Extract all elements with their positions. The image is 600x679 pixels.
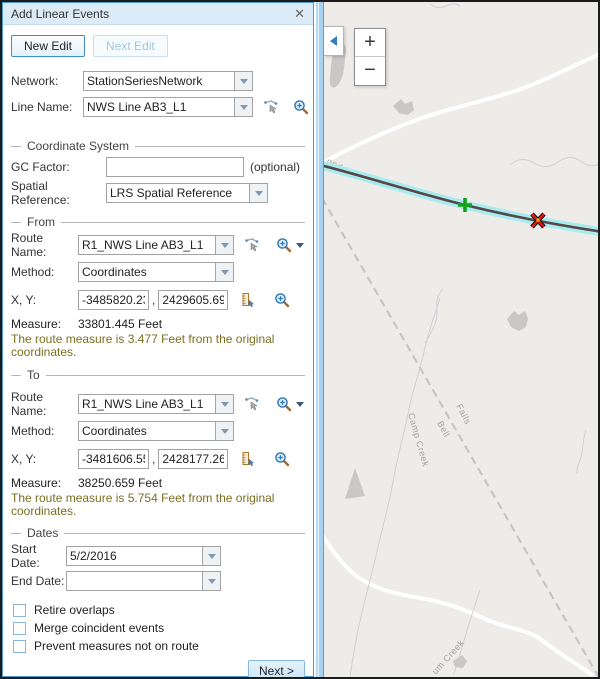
xy-separator: , <box>152 293 155 307</box>
retire-overlaps-option: Retire overlaps <box>11 601 305 619</box>
select-line-on-map-icon[interactable] <box>263 99 279 115</box>
optional-hint: (optional) <box>250 160 300 174</box>
pick-coordinates-icon[interactable] <box>240 451 256 467</box>
zoom-to-line-icon[interactable] <box>293 99 309 115</box>
from-route-name-select[interactable]: R1_NWS Line AB3_L1 <box>78 235 234 255</box>
dropdown-arrow-icon[interactable] <box>215 422 233 440</box>
network-value: StationSeriesNetwork <box>84 72 234 90</box>
checkbox-label: Merge coincident events <box>34 621 164 635</box>
prevent-measures-checkbox[interactable] <box>13 640 26 653</box>
to-measure-value: 38250.659 Feet <box>78 476 162 490</box>
chevron-left-icon <box>330 36 337 46</box>
start-date-value: 5/2/2016 <box>67 547 202 565</box>
dropdown-arrow-icon[interactable] <box>215 263 233 281</box>
map-canvas[interactable]: ond Cr Falls Bell Camp Creek um Creek + <box>323 2 598 677</box>
network-label: Network: <box>11 74 83 88</box>
zoom-out-button[interactable]: − <box>355 57 385 85</box>
from-method-select[interactable]: Coordinates <box>78 262 234 282</box>
to-measure-label: Measure: <box>11 476 78 490</box>
select-route-on-map-icon[interactable] <box>244 237 260 253</box>
from-method-label: Method: <box>11 265 78 279</box>
line-name-select[interactable]: NWS Line AB3_L1 <box>83 97 253 117</box>
app-window: Add Linear Events ✕ New Edit Next Edit N… <box>0 0 600 679</box>
new-edit-button[interactable]: New Edit <box>11 35 85 57</box>
start-date-label: Start Date: <box>11 542 66 570</box>
merge-coincident-events-option: Merge coincident events <box>11 619 305 637</box>
zoom-to-route-icon[interactable] <box>276 396 292 412</box>
panel-splitter[interactable] <box>314 2 323 677</box>
network-select[interactable]: StationSeriesNetwork <box>83 71 253 91</box>
collapse-panel-button[interactable] <box>324 26 344 56</box>
pick-coordinates-icon[interactable] <box>240 292 256 308</box>
road-lines <box>324 53 598 675</box>
zoom-to-point-icon[interactable] <box>274 292 290 308</box>
dropdown-arrow-icon[interactable] <box>234 72 252 90</box>
to-method-select[interactable]: Coordinates <box>78 421 234 441</box>
creek-label: Camp Creek <box>406 412 431 468</box>
merge-coincident-events-checkbox[interactable] <box>13 622 26 635</box>
from-measure-hint: The route measure is 3.477 Feet from the… <box>11 333 305 359</box>
from-method-value: Coordinates <box>79 263 215 281</box>
line-name-label: Line Name: <box>11 100 83 114</box>
railroad-line <box>324 198 598 677</box>
dropdown-arrow-icon[interactable] <box>215 395 233 413</box>
from-x-input[interactable] <box>78 290 149 310</box>
coordinate-system-section-header: Coordinate System <box>11 139 305 153</box>
prevent-measures-option: Prevent measures not on route <box>11 637 305 655</box>
from-route-name-value: R1_NWS Line AB3_L1 <box>79 236 215 254</box>
railroad-label: Bell <box>435 419 452 439</box>
to-route-name-value: R1_NWS Line AB3_L1 <box>79 395 215 413</box>
map-zoom-control: + − <box>354 28 386 86</box>
close-icon[interactable]: ✕ <box>294 7 305 20</box>
end-date-value <box>67 572 202 590</box>
from-route-name-label: Route Name: <box>11 231 78 259</box>
select-route-on-map-icon[interactable] <box>244 396 260 412</box>
to-route-name-label: Route Name: <box>11 390 78 418</box>
to-xy-label: X, Y: <box>11 452 78 466</box>
panel-titlebar: Add Linear Events ✕ <box>3 3 313 25</box>
to-x-input[interactable] <box>78 449 149 469</box>
to-method-value: Coordinates <box>79 422 215 440</box>
spatial-reference-select[interactable]: LRS Spatial Reference <box>106 183 268 203</box>
from-measure-label: Measure: <box>11 317 78 331</box>
railroad-label: Falls <box>454 402 473 426</box>
to-y-input[interactable] <box>158 449 228 469</box>
dropdown-arrow-icon[interactable] <box>234 98 252 116</box>
panel-title: Add Linear Events <box>11 7 294 21</box>
gc-factor-label: GC Factor: <box>11 160 106 174</box>
route-highlight <box>324 165 598 232</box>
zoom-in-button[interactable]: + <box>355 29 385 57</box>
spatial-reference-value: LRS Spatial Reference <box>107 184 249 202</box>
from-y-input[interactable] <box>158 290 228 310</box>
to-measure-hint: The route measure is 5.754 Feet from the… <box>11 492 305 518</box>
to-section-header: To <box>11 368 305 382</box>
from-xy-label: X, Y: <box>11 293 78 307</box>
line-name-value: NWS Line AB3_L1 <box>84 98 234 116</box>
zoom-to-route-icon[interactable] <box>276 237 292 253</box>
calendar-dropdown-arrow-icon[interactable] <box>202 572 220 590</box>
checkbox-label: Retire overlaps <box>34 603 115 617</box>
zoom-options-arrow-icon[interactable] <box>296 402 304 407</box>
zoom-options-arrow-icon[interactable] <box>296 243 304 248</box>
retire-overlaps-checkbox[interactable] <box>13 604 26 617</box>
checkbox-label: Prevent measures not on route <box>34 639 199 653</box>
spatial-reference-label: Spatial Reference: <box>11 179 106 207</box>
dropdown-arrow-icon[interactable] <box>215 236 233 254</box>
to-route-name-select[interactable]: R1_NWS Line AB3_L1 <box>78 394 234 414</box>
dates-section-header: Dates <box>11 526 305 540</box>
calendar-dropdown-arrow-icon[interactable] <box>202 547 220 565</box>
add-linear-events-panel: Add Linear Events ✕ New Edit Next Edit N… <box>2 2 314 677</box>
start-date-select[interactable]: 5/2/2016 <box>66 546 221 566</box>
from-measure-value: 33801.445 Feet <box>78 317 162 331</box>
to-method-label: Method: <box>11 424 78 438</box>
from-section-header: From <box>11 215 305 229</box>
dropdown-arrow-icon[interactable] <box>249 184 267 202</box>
end-date-select[interactable] <box>66 571 221 591</box>
gc-factor-input[interactable] <box>106 157 244 177</box>
next-button[interactable]: Next > <box>248 660 305 679</box>
zoom-to-point-icon[interactable] <box>274 451 290 467</box>
end-date-label: End Date: <box>11 574 66 588</box>
xy-separator: , <box>152 452 155 466</box>
pond-polygons <box>330 42 528 668</box>
next-edit-button[interactable]: Next Edit <box>93 35 168 57</box>
